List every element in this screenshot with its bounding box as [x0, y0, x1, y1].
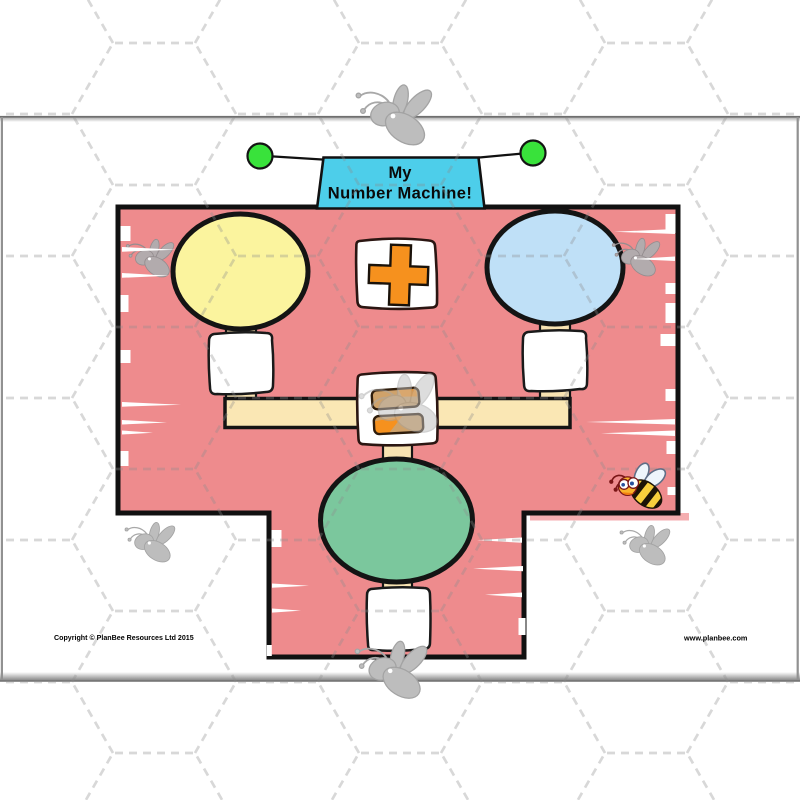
svg-text:Copyright © PlanBee Resources: Copyright © PlanBee Resources Ltd 2015 [54, 634, 194, 642]
svg-text:My: My [389, 164, 413, 182]
svg-text:Number Machine!: Number Machine! [328, 185, 472, 203]
svg-text:www.planbee.com: www.planbee.com [683, 634, 748, 643]
